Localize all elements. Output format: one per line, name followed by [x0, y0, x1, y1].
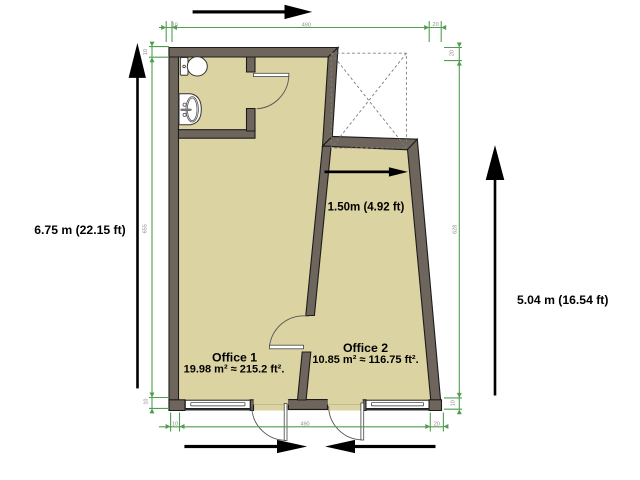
svg-text:10: 10 [143, 49, 149, 55]
svg-text:490: 490 [300, 422, 309, 428]
svg-text:20: 20 [449, 50, 455, 56]
svg-text:490: 490 [302, 22, 311, 28]
svg-text:1.50m (4.92 ft): 1.50m (4.92 ft) [328, 202, 405, 214]
svg-text:20: 20 [433, 22, 439, 28]
svg-text:6.75 m (22.15 ft): 6.75 m (22.15 ft) [34, 223, 125, 237]
svg-text:10: 10 [144, 399, 150, 405]
svg-text:10: 10 [172, 22, 178, 28]
svg-text:20: 20 [434, 422, 440, 428]
svg-text:19.98 m² ≈ 215.2 ft².: 19.98 m² ≈ 215.2 ft². [184, 364, 285, 376]
svg-text:655: 655 [142, 224, 148, 233]
svg-text:628: 628 [453, 225, 459, 234]
svg-text:Office 2: Office 2 [343, 341, 388, 355]
svg-text:10: 10 [172, 422, 178, 428]
svg-text:Office 1: Office 1 [212, 351, 257, 365]
svg-text:10: 10 [450, 400, 456, 406]
svg-text:5.04 m (16.54 ft): 5.04 m (16.54 ft) [517, 293, 608, 307]
svg-text:10.85 m² ≈ 116.75 ft².: 10.85 m² ≈ 116.75 ft². [312, 354, 418, 366]
